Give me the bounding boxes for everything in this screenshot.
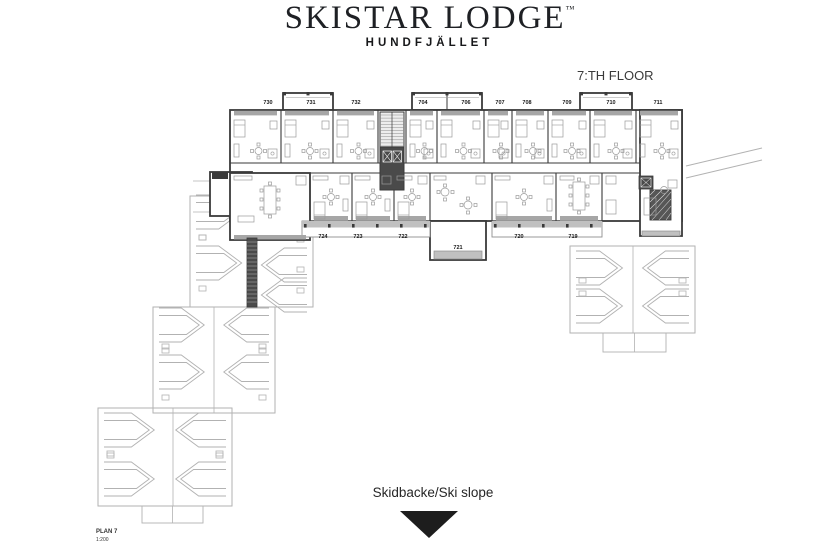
plan-meta-name: PLAN 7 (96, 529, 117, 537)
room-label: 731 (306, 100, 315, 106)
room-label: 732 (351, 100, 360, 106)
brand-title-text: SKISTAR LODGE (285, 0, 566, 36)
room-label: 704 (418, 100, 428, 106)
plan-meta: PLAN 7 1:200 (96, 529, 117, 543)
room-label: 710 (606, 100, 615, 106)
room-label: 730 (263, 100, 272, 106)
room-label: 720 (514, 234, 523, 240)
room-label: 721 (453, 245, 462, 251)
room-label: 723 (353, 234, 362, 240)
brand-header: SKISTAR LODGE™ HUNDFJÄLLET (0, 2, 833, 49)
room-label: 719 (568, 234, 577, 240)
brand-title: SKISTAR LODGE™ (26, 2, 833, 36)
slope-direction-triangle-icon (400, 511, 458, 538)
floor-plan-drawing: 7307317327047067077087097107117247237227… (0, 0, 833, 555)
room-label: 724 (318, 234, 328, 240)
room-label: 707 (495, 100, 504, 106)
ski-slope-label: Skidbacke/Ski slope (333, 485, 533, 500)
trademark-symbol: ™ (566, 4, 575, 14)
page: 7307317327047067077087097107117247237227… (0, 0, 833, 555)
balconies (302, 221, 680, 259)
room-label: 708 (522, 100, 531, 106)
room-label: 722 (398, 234, 407, 240)
floor-label: 7:TH FLOOR (577, 68, 654, 83)
brand-subtitle: HUNDFJÄLLET (26, 37, 833, 49)
room-label: 711 (654, 100, 663, 106)
room-label: 709 (562, 100, 571, 106)
room-label: 706 (461, 100, 470, 106)
plan-meta-scale: 1:200 (96, 537, 117, 543)
